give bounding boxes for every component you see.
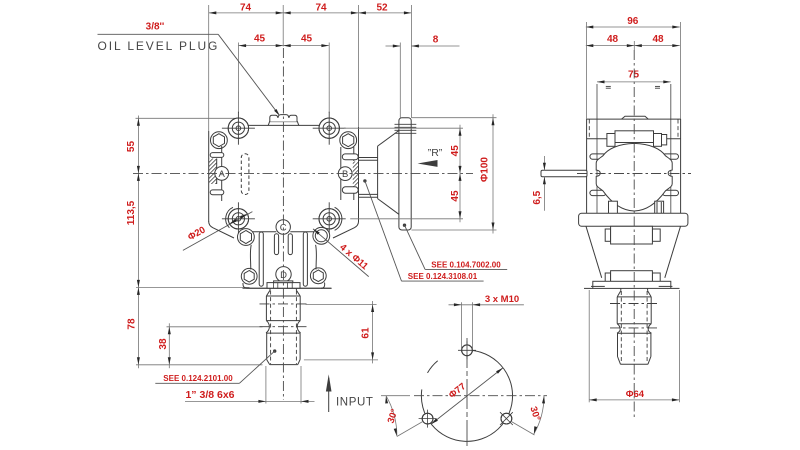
svg-text:SEE 0.124.2101.00: SEE 0.124.2101.00: [163, 374, 233, 383]
svg-text:SEE 0.124.3108.01: SEE 0.124.3108.01: [408, 272, 478, 281]
svg-text:A: A: [219, 169, 226, 180]
svg-text:8: 8: [433, 35, 439, 46]
svg-text:SEE 0.104.7002.00: SEE 0.104.7002.00: [431, 261, 501, 270]
svg-text:”R”: ”R”: [428, 147, 443, 159]
svg-text:52: 52: [376, 3, 388, 14]
svg-text:113,5: 113,5: [126, 200, 137, 225]
svg-text:61: 61: [360, 327, 371, 339]
svg-text:55: 55: [126, 141, 137, 153]
svg-text:3/8'': 3/8'': [146, 22, 165, 33]
svg-text:74: 74: [240, 3, 252, 14]
svg-text:78: 78: [126, 318, 137, 330]
svg-text:38: 38: [158, 338, 169, 350]
svg-text:45: 45: [254, 34, 266, 45]
svg-text:75: 75: [628, 70, 640, 81]
svg-text:3 x M10: 3 x M10: [485, 294, 519, 305]
svg-text:48: 48: [607, 34, 619, 45]
svg-text:1” 3/8 6x6: 1” 3/8 6x6: [185, 389, 234, 401]
svg-text:INPUT: INPUT: [336, 397, 374, 409]
svg-text:Φ64: Φ64: [626, 389, 645, 400]
svg-text:OIL LEVEL PLUG: OIL LEVEL PLUG: [98, 39, 220, 53]
svg-text:Φ100: Φ100: [480, 157, 491, 182]
svg-text:B: B: [342, 169, 348, 180]
svg-text:74: 74: [315, 3, 327, 14]
svg-text:6,5: 6,5: [532, 190, 543, 204]
svg-text:96: 96: [627, 16, 639, 27]
svg-text:45: 45: [450, 145, 461, 157]
svg-text:45: 45: [301, 34, 313, 45]
svg-text:45: 45: [450, 190, 461, 202]
svg-text:48: 48: [652, 34, 664, 45]
